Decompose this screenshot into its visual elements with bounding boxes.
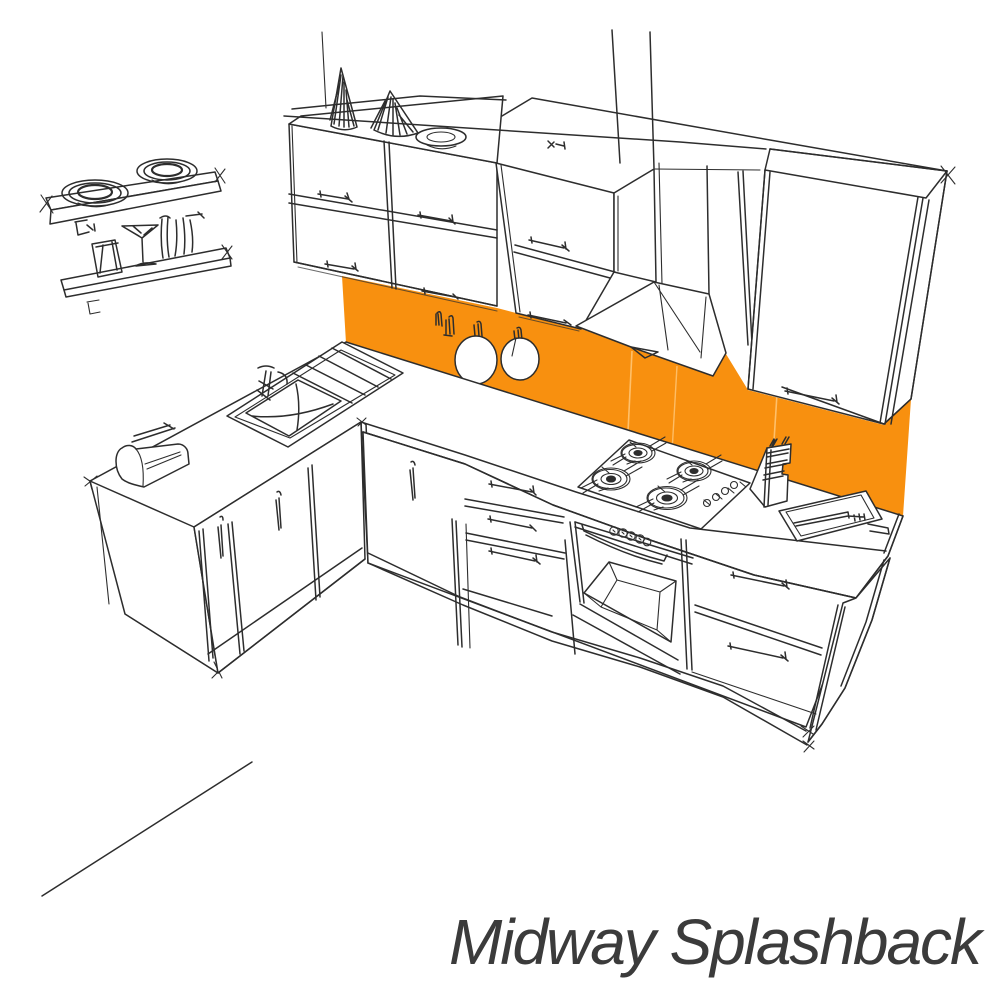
svg-text:Midway Splashback: Midway Splashback <box>449 906 985 978</box>
